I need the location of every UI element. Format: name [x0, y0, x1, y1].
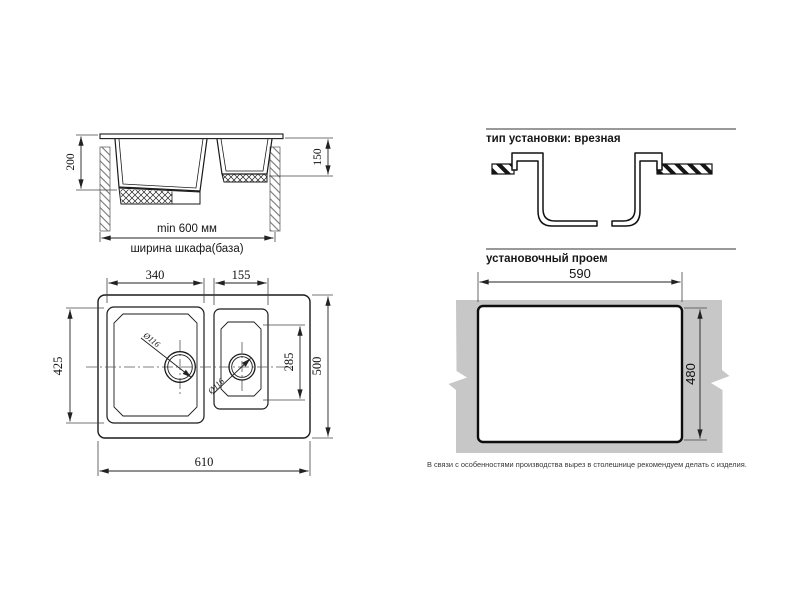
- cutout-rect: [478, 306, 682, 442]
- top-view: Ø116 Ø116 340 155 425: [51, 268, 333, 476]
- dim-small-bowl-width: 155: [214, 268, 268, 305]
- dim-main-bowl-width: 340: [107, 268, 204, 303]
- dim-overall-length: 500: [310, 295, 333, 438]
- small-bowl-bottom-band: [222, 174, 267, 182]
- small-drain-diameter-label: Ø116: [205, 375, 226, 396]
- dim-425-label: 425: [51, 357, 65, 376]
- production-note: В связи с особенностями производства выр…: [427, 460, 747, 469]
- dim-155-label: 155: [232, 268, 251, 282]
- cabinet-width-label: ширина шкафа(база): [130, 243, 243, 255]
- sink-profile-left: [512, 153, 597, 226]
- sink-deck-section: [100, 134, 283, 139]
- countertop-left-hatch: [492, 164, 514, 174]
- dim-main-bowl-length: 425: [51, 308, 104, 423]
- min-width-label: min 600 мм: [157, 223, 217, 235]
- cabinet-wall-right-hatch: [270, 147, 280, 231]
- drawing-canvas: 200 150 min 600 мм ширина шкафа(база): [0, 0, 800, 600]
- dim-main-drain: Ø116: [141, 329, 192, 377]
- dim-590-label: 590: [569, 266, 591, 281]
- countertop-right-hatch: [657, 164, 712, 174]
- cutout-heading: установочный проем: [486, 253, 608, 265]
- dim-overall-width: 610: [98, 441, 310, 476]
- small-bowl-section: [217, 139, 272, 182]
- dim-610-label: 610: [195, 455, 214, 469]
- main-bowl-section: [115, 139, 207, 204]
- dim-285-label: 285: [282, 353, 296, 372]
- dim-200-label: 200: [65, 153, 77, 171]
- dim-150-label: 150: [312, 148, 324, 166]
- dim-small-bowl-length: 285: [263, 325, 305, 400]
- main-bowl-top: [107, 307, 204, 423]
- cutout-view: установочный проем 590 480 В связи с осо…: [427, 249, 747, 469]
- dim-480-label: 480: [683, 363, 698, 385]
- section-view: 200 150 min 600 мм ширина шкафа(база): [65, 134, 333, 255]
- small-bowl-top: [214, 309, 268, 409]
- cabinet-wall-left-hatch: [100, 147, 110, 231]
- install-type-heading: тип установки: врезная: [486, 133, 621, 145]
- dim-340-label: 340: [146, 268, 165, 282]
- dim-500-label: 500: [310, 357, 324, 376]
- dim-cabinet-width: min 600 мм ширина шкафа(база): [100, 223, 275, 255]
- main-bowl-bottom-hatch: [120, 189, 172, 203]
- sink-profile-right: [612, 153, 662, 226]
- dim-cutout-width: 590: [478, 266, 682, 302]
- sink-installation-drawing: 200 150 min 600 мм ширина шкафа(база): [0, 0, 800, 600]
- install-type-view: тип установки: врезная: [486, 129, 736, 226]
